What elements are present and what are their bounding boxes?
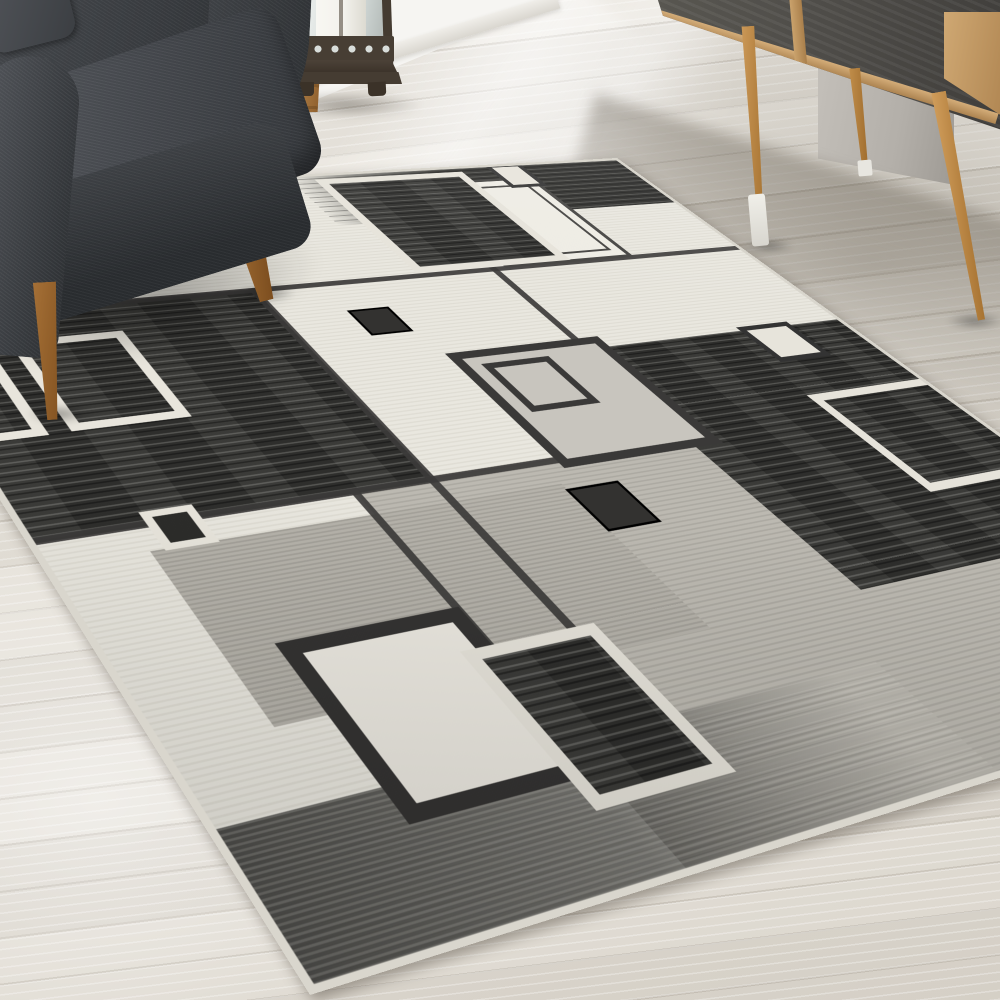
armchair [0, 0, 340, 450]
lantern-foot [368, 82, 387, 97]
living-room-photo [0, 0, 1000, 1000]
sideboard-leg-cap [857, 159, 872, 176]
sideboard-leg-shadow [946, 312, 1000, 330]
